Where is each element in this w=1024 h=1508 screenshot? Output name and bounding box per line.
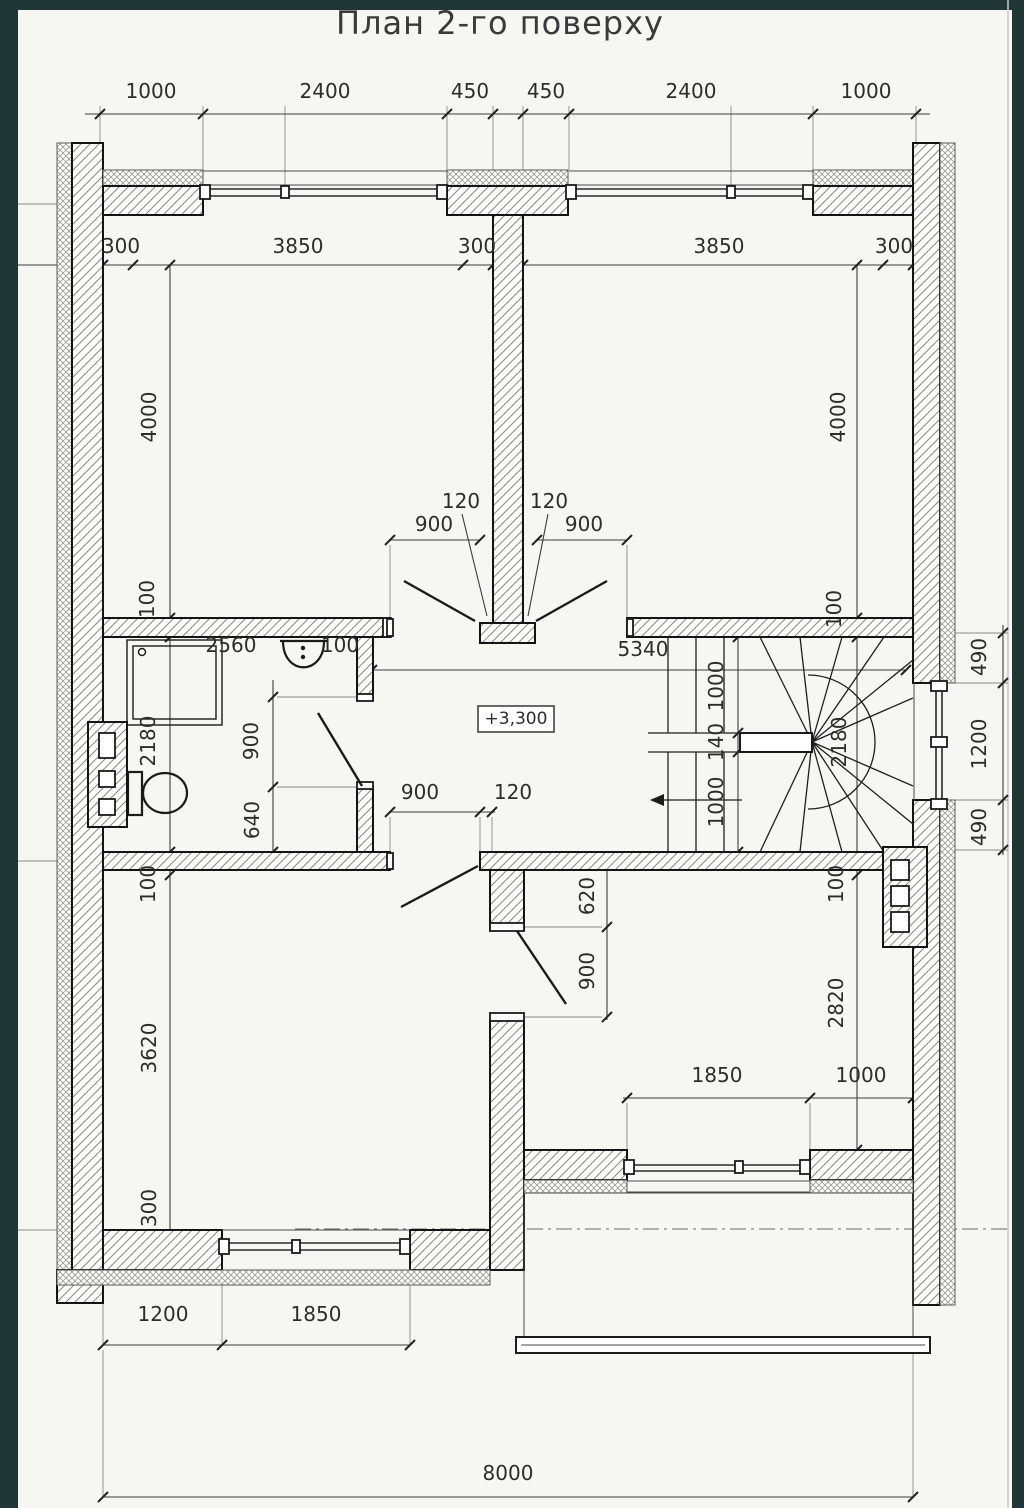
dim-top-450-left: 450: [451, 79, 489, 103]
door-leaf-room-bottom-right: [517, 931, 566, 1004]
dim-balc-1000: 1000: [836, 1063, 887, 1087]
dim-top-2400-left: 2400: [300, 79, 351, 103]
dim-door-120-left: 120: [442, 489, 480, 513]
level-mark: +3,300: [485, 709, 548, 729]
dim-lower-620: 620: [575, 877, 599, 915]
dim-bath-2180: 2180: [136, 716, 160, 767]
dim-room-300-l1: 300: [102, 234, 140, 258]
dim-bath-900: 900: [239, 722, 263, 760]
dim-hall-5340: 5340: [618, 637, 669, 661]
dim-balc-1850: 1850: [692, 1063, 743, 1087]
dim-lleft-3620: 3620: [137, 1023, 161, 1074]
dim-lower-900: 900: [575, 952, 599, 990]
dim-room-300-r2: 300: [875, 234, 913, 258]
dim-lleft-100: 100: [136, 865, 160, 903]
door-leaf-room-bottom-left: [401, 866, 478, 907]
dim-door-120-right: 120: [530, 489, 568, 513]
dim-top-2400-right: 2400: [666, 79, 717, 103]
dim-stair-140: 140: [704, 723, 728, 761]
dim-bath-100: 100: [321, 633, 359, 657]
dim-door-900-left: 900: [415, 512, 453, 536]
dim-wall-100-left: 100: [135, 580, 159, 618]
dim-stair-1000-down: 1000: [704, 777, 728, 828]
stair-group: [648, 637, 913, 852]
toilet: [128, 772, 187, 815]
floor-plan-page: План 2-го поверху: [0, 0, 1024, 1508]
dim-bot-1850: 1850: [291, 1302, 342, 1326]
stair-landing-rail: [740, 733, 812, 752]
dim-stair-2180: 2180: [827, 717, 851, 768]
dim-room-4000-right: 4000: [826, 392, 850, 443]
dim-room-3850-right: 3850: [694, 234, 745, 258]
dim-room-3850-left: 3850: [273, 234, 324, 258]
window-top-right: [566, 185, 813, 199]
dim-bath-640: 640: [240, 801, 264, 839]
dim-stair-1000-up: 1000: [704, 661, 728, 712]
dim-right-490-bottom: 490: [967, 808, 991, 846]
stair-direction-arrow: [650, 794, 664, 806]
dim-overall-8000: 8000: [483, 1461, 534, 1485]
balcony-group: [516, 1193, 930, 1353]
dim-room-4000-left: 4000: [137, 392, 161, 443]
dim-lower-900-door: 900: [401, 780, 439, 804]
floor-plan-drawing: 1000240045045024001000300385030038503004…: [0, 0, 1024, 1508]
dim-lleft-300: 300: [137, 1189, 161, 1227]
dim-lower-120: 120: [494, 780, 532, 804]
dim-top-1000-left: 1000: [126, 79, 177, 103]
door-leaf-bathroom: [318, 713, 362, 786]
vent-shaft-right: [883, 847, 927, 947]
dim-right-490-top: 490: [967, 638, 991, 676]
window-bottom-left: [219, 1239, 410, 1254]
dim-bath-2560: 2560: [206, 633, 257, 657]
dim-bot-1200: 1200: [138, 1302, 189, 1326]
dim-lright-2820: 2820: [824, 978, 848, 1029]
dim-top-450-right: 450: [527, 79, 565, 103]
window-balcony: [624, 1160, 810, 1174]
dim-right-1200: 1200: [967, 719, 991, 770]
dim-wall-100-right: 100: [822, 590, 846, 628]
window-top-left: [200, 185, 447, 199]
dim-room-300-l2: 300: [458, 234, 496, 258]
window-stair-right: [931, 681, 947, 809]
door-leaf-room-top-left: [404, 581, 475, 621]
dim-door-900-right: 900: [565, 512, 603, 536]
dim-top-1000-right: 1000: [841, 79, 892, 103]
door-leaf-room-top-right: [536, 581, 607, 621]
dim-lright-100: 100: [824, 865, 848, 903]
vent-shaft-left: [88, 722, 127, 827]
